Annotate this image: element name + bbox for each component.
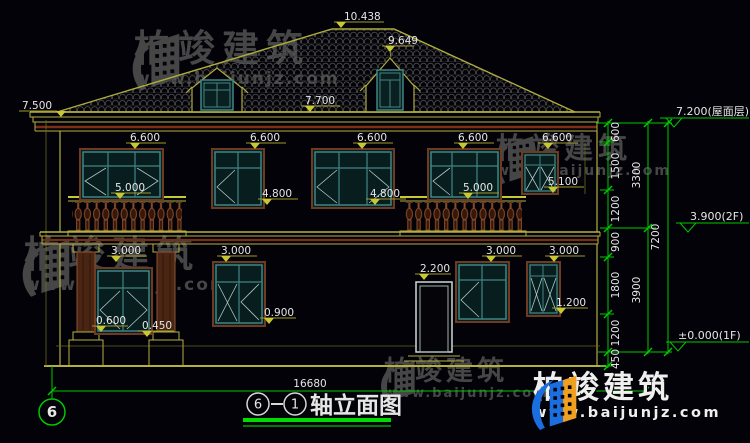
window-1f-mid (213, 262, 265, 326)
right-dimension-chain: 600 1500 1200 900 1800 1200 450 3300 390… (596, 105, 749, 370)
axis-bubble-number: 6 (47, 403, 57, 421)
chain-seg-600: 600 (610, 122, 622, 142)
chain-seg-1500: 1500 (610, 153, 622, 180)
title-axis-end: 1 (291, 398, 299, 413)
chain-seg-450: 450 (610, 349, 622, 369)
door-steps (404, 356, 464, 361)
brand-logo: 柏竣建筑 www.baijunjz.com (528, 372, 721, 421)
porch-column-right (149, 244, 183, 366)
elev-label-roof-level: 7.200(屋面层) (676, 105, 749, 118)
windows-2f (80, 149, 558, 208)
chain-seg-1200-upper: 1200 (610, 196, 622, 223)
chain-seg-1800: 1800 (610, 272, 622, 299)
title-text: 轴立面图 (310, 392, 402, 419)
window-2f-b (212, 149, 264, 208)
elev-label-2f-head: 6.600 (130, 132, 160, 144)
elev-label-door-head: 2.200 (420, 263, 450, 275)
elev-label-rail: 5.000 (463, 182, 493, 194)
chain-seg-900: 900 (610, 232, 622, 252)
elev-label-1f-level: ±0.000(1F) (678, 329, 741, 342)
elev-label-right-sill: 1.200 (556, 297, 586, 309)
floor-band (40, 232, 600, 244)
elev-label-plinth: 0.450 (142, 320, 172, 332)
elev-label-2f-head: 6.600 (542, 132, 572, 144)
overall-width-dim: 16680 (293, 378, 326, 390)
elev-label-1f-head: 3.000 (111, 245, 141, 257)
elev-label-small-sill: 5.100 (548, 176, 578, 188)
elev-label-rail: 5.000 (115, 182, 145, 194)
elev-label-ridge: 10.438 (344, 11, 381, 23)
elev-label-porch-sill: 0.600 (96, 315, 126, 327)
cornice (30, 112, 600, 131)
window-1f-right-a (456, 262, 509, 322)
elev-label-eave-top: 7.700 (305, 95, 335, 107)
chain-sub-3900: 3900 (631, 277, 643, 304)
elev-label-2f-head: 6.600 (357, 132, 387, 144)
elev-label-2f-head: 6.600 (250, 132, 280, 144)
balcony-left (68, 197, 186, 236)
elev-label-1f-head: 3.000 (221, 245, 251, 257)
elev-label-1f-head: 3.000 (486, 245, 516, 257)
chain-seg-1200-lower: 1200 (610, 320, 622, 347)
elev-label-2f-head: 6.600 (458, 132, 488, 144)
balcony-right (400, 197, 526, 236)
title-underline-thick (243, 418, 391, 422)
elev-label-mid-sill: 0.900 (264, 307, 294, 319)
drawing-title: 6 1 轴立面图 (243, 392, 402, 426)
elev-label-2f-sill: 4.800 (370, 188, 400, 200)
chain-total-7200: 7200 (650, 224, 662, 251)
elev-label-2f-level: 3.900(2F) (690, 210, 743, 223)
brand-logo-icon (528, 372, 586, 435)
elev-label-2f-sill: 4.800 (262, 188, 292, 200)
chain-sub-3300: 3300 (631, 162, 643, 189)
elev-label-dormer: 9.649 (388, 35, 418, 47)
balusters (404, 202, 522, 231)
elev-label-eave-left: 7.500 (22, 100, 52, 112)
cad-elevation-screenshot: 柏竣建筑 www.baijunjz.com 柏竣建筑 www.baijunjz.… (0, 0, 750, 443)
title-axis-start: 6 (254, 398, 262, 413)
balusters (72, 202, 182, 231)
elev-label-1f-head: 3.000 (549, 245, 579, 257)
right-elevation-flags: 7.200(屋面层) 3.900(2F) ±0.000(1F) (660, 105, 749, 351)
